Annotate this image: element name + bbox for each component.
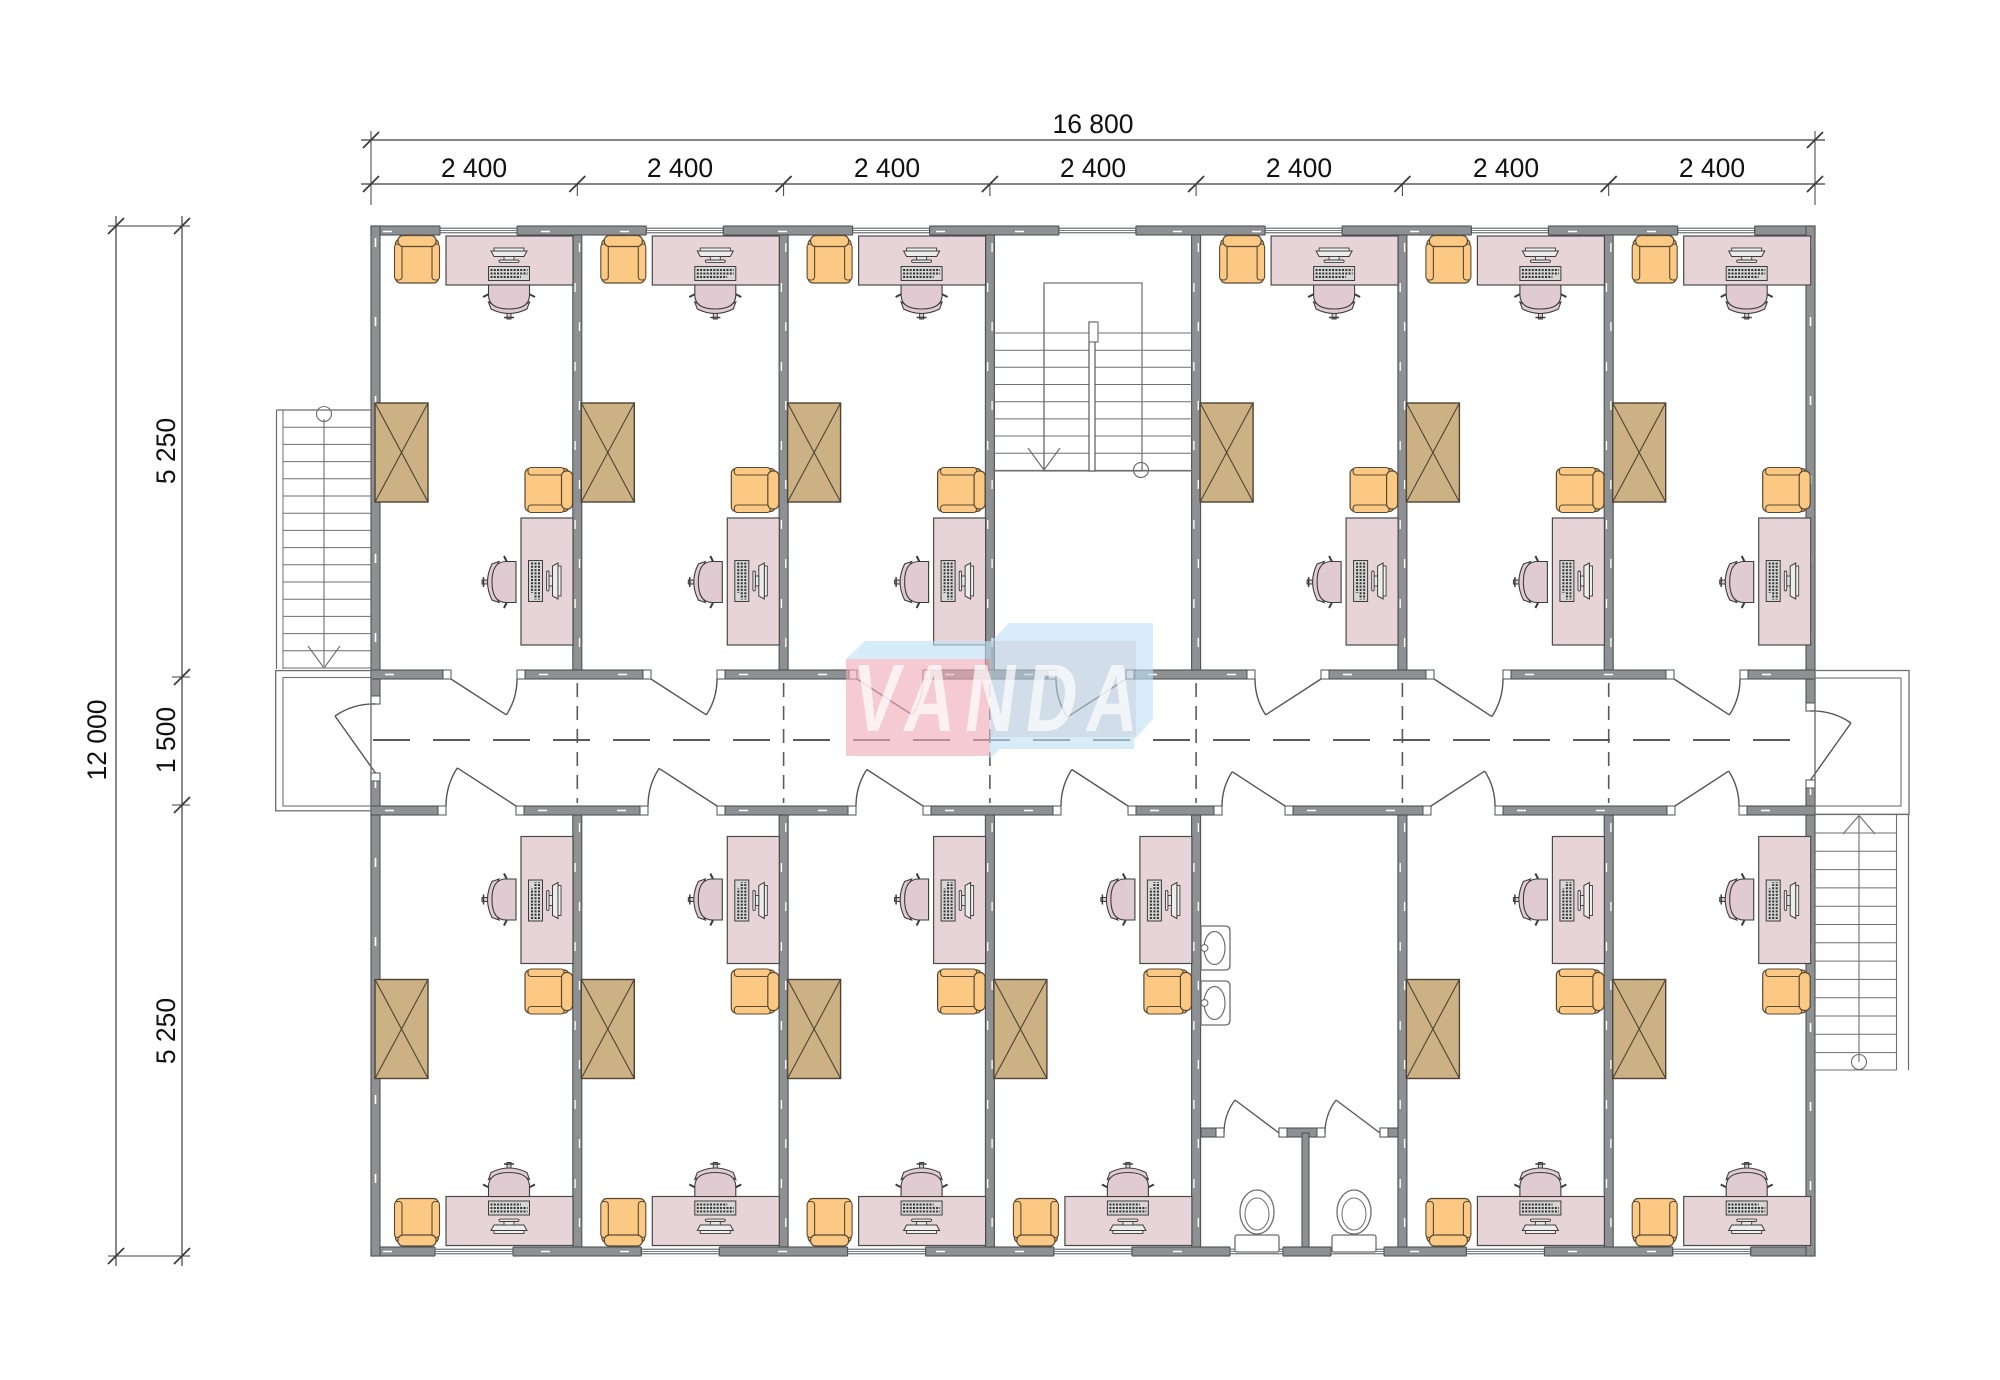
svg-text:VANDA: VANDA [847,645,1156,752]
svg-text:2 400: 2 400 [1679,153,1745,183]
svg-text:2 400: 2 400 [1266,153,1332,183]
svg-text:1 500: 1 500 [151,707,181,773]
svg-text:2 400: 2 400 [647,153,713,183]
svg-text:12 000: 12 000 [82,699,112,780]
svg-text:16 800: 16 800 [1052,109,1133,139]
svg-text:2 400: 2 400 [854,153,920,183]
svg-text:5 250: 5 250 [151,998,181,1064]
svg-text:2 400: 2 400 [441,153,507,183]
svg-text:2 400: 2 400 [1060,153,1126,183]
svg-text:2 400: 2 400 [1473,153,1539,183]
svg-text:5 250: 5 250 [151,418,181,484]
